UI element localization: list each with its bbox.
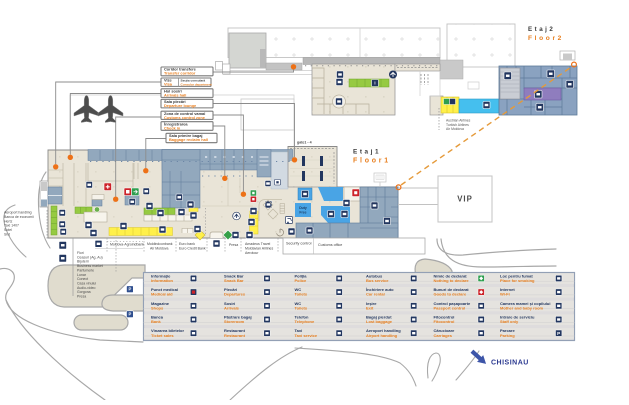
svg-text:Toilets: Toilets [295, 292, 308, 297]
svg-text:Sixt: Sixt [4, 233, 10, 237]
svg-text:F l o o r 2: F l o o r 2 [528, 35, 562, 42]
svg-text:Baggage reclaim hall: Baggage reclaim hall [169, 137, 208, 142]
svg-text:Airport handling: Airport handling [366, 333, 398, 338]
svg-text:Visa: Visa [164, 82, 173, 87]
svg-text:Arrivals: Arrivals [224, 305, 240, 310]
svg-text:Information: Information [151, 278, 174, 283]
svg-text:Air Moldova: Air Moldova [446, 127, 464, 131]
svg-text:F l o o r 1: F l o o r 1 [353, 158, 389, 165]
svg-text:Fitocontrol: Fitocontrol [434, 319, 455, 324]
svg-text:Transfer corridor: Transfer corridor [164, 71, 196, 76]
svg-text:Customs control zone: Customs control zone [164, 115, 206, 120]
svg-text:Place for smoking: Place for smoking [500, 278, 535, 283]
svg-text:Carriages: Carriages [434, 333, 453, 338]
svg-text:Medical aid: Medical aid [151, 292, 173, 297]
svg-text:Departure lounge: Departure lounge [164, 103, 197, 108]
svg-text:Bus service: Bus service [366, 278, 389, 283]
svg-text:Security control: Security control [286, 241, 312, 245]
svg-text:VIP: VIP [457, 195, 473, 204]
svg-text:Exit: Exit [366, 305, 374, 310]
svg-text:Moldavian Airlines: Moldavian Airlines [245, 247, 273, 251]
svg-text:Lost baggage: Lost baggage [366, 319, 393, 324]
svg-text:Euro Credit Bank: Euro Credit Bank [179, 247, 206, 251]
svg-text:Presa: Presa [229, 243, 238, 247]
svg-text:Nothing to declare: Nothing to declare [434, 278, 470, 283]
svg-text:E t a j 2: E t a j 2 [528, 26, 553, 33]
svg-text:Free: Free [299, 211, 306, 215]
svg-text:Ticket sales: Ticket sales [151, 333, 174, 338]
svg-text:Snack Bar: Snack Bar [224, 278, 244, 283]
svg-text:Consular department: Consular department [181, 83, 212, 87]
svg-text:Aeroport handling: Aeroport handling [4, 211, 32, 215]
svg-text:Presa: Presa [77, 295, 86, 299]
svg-text:Amadeus Travel: Amadeus Travel [245, 242, 271, 246]
svg-text:Passport control: Passport control [434, 305, 466, 310]
svg-text:P: P [557, 331, 560, 336]
svg-text:Moldindconbank: Moldindconbank [147, 242, 173, 246]
svg-text:Parking: Parking [500, 333, 515, 338]
svg-text:Telephone: Telephone [295, 319, 315, 324]
svg-text:Restaurant: Restaurant [224, 333, 246, 338]
svg-text:CHISINAU: CHISINAU [491, 360, 529, 367]
svg-text:Departures: Departures [224, 292, 246, 297]
svg-text:Banca de economii: Banca de economii [4, 215, 34, 219]
svg-text:Arrivals hall: Arrivals hall [164, 92, 186, 97]
svg-text:Hertz: Hertz [4, 219, 13, 223]
svg-text:E t a j 1: E t a j 1 [353, 149, 379, 156]
svg-text:P: P [129, 287, 132, 292]
svg-text:Mother and baby room: Mother and baby room [500, 305, 544, 310]
svg-text:Goods to declare: Goods to declare [434, 292, 467, 297]
svg-text:Sotel: Sotel [4, 228, 12, 232]
svg-text:Toilets: Toilets [295, 305, 308, 310]
svg-text:Car rental: Car rental [366, 292, 385, 297]
svg-text:Duty: Duty [299, 206, 307, 210]
svg-text:Euro bank: Euro bank [179, 242, 195, 246]
svg-text:Aerotour: Aerotour [245, 251, 259, 255]
svg-text:Moldova-Agroindbank: Moldova-Agroindbank [110, 243, 144, 247]
svg-text:Check in: Check in [164, 125, 181, 130]
svg-text:Shops: Shops [151, 305, 164, 310]
svg-text:Air Moldova: Air Moldova [150, 247, 169, 251]
svg-text:Wi-Fi: Wi-Fi [500, 292, 510, 297]
svg-text:Taxi service: Taxi service [295, 333, 318, 338]
svg-text:Customs office: Customs office [318, 243, 342, 247]
svg-text:P: P [129, 312, 132, 317]
svg-text:Taxi 1407: Taxi 1407 [4, 224, 19, 228]
svg-text:Bank: Bank [151, 319, 162, 324]
svg-text:Police: Police [295, 278, 308, 283]
svg-text:i: i [374, 81, 375, 86]
svg-text:Storeroom: Storeroom [224, 319, 245, 324]
svg-text:Staff only: Staff only [500, 319, 519, 324]
svg-text:gate1 - 4: gate1 - 4 [297, 141, 312, 145]
